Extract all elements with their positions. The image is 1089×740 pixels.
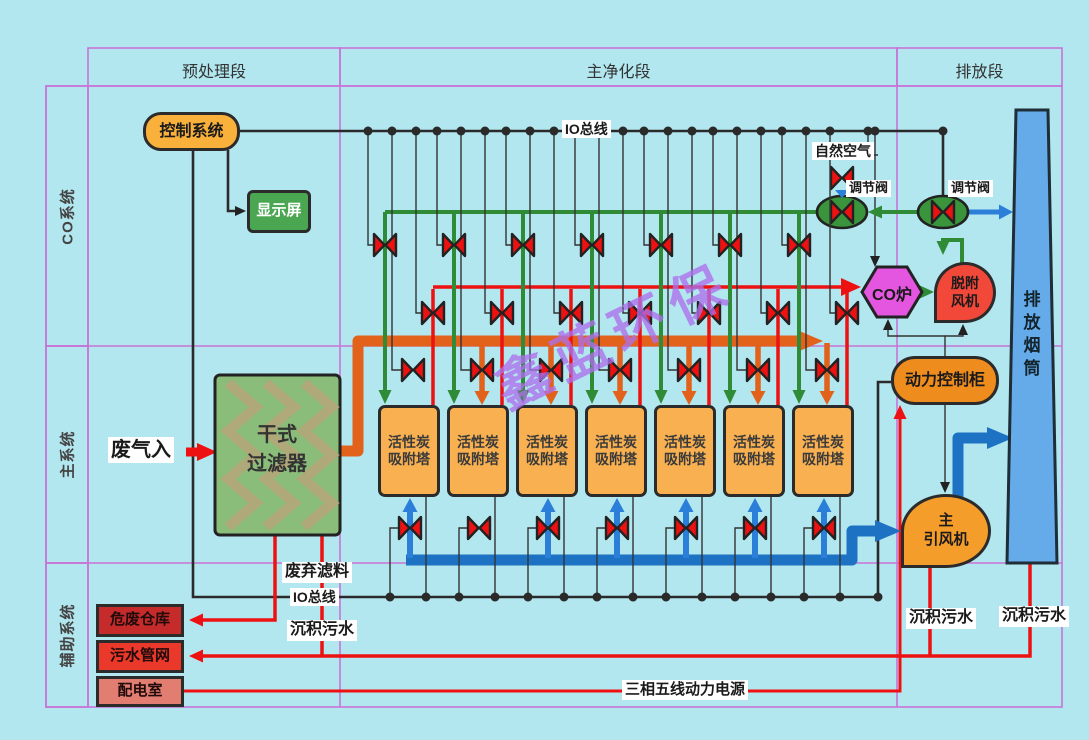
adsorption-tower-6[interactable]: 活性炭吸附塔: [723, 405, 785, 497]
pipe-valve[interactable]: [468, 517, 490, 539]
tower-plumbing: [364, 127, 859, 602]
sediment-sewage-mid-label: 沉积污水: [906, 608, 976, 629]
io-bus-top-label: IO总线: [562, 120, 611, 138]
tower-label-line1: 活性炭: [664, 434, 706, 452]
display-screen-box[interactable]: 显示屏: [247, 190, 311, 233]
adsorption-tower-5[interactable]: 活性炭吸附塔: [654, 405, 716, 497]
power-cabinet-box[interactable]: 动力控制柜: [891, 356, 999, 405]
main-fan-box[interactable]: 主引风机: [901, 494, 991, 568]
adsorption-tower-7[interactable]: 活性炭吸附塔: [792, 405, 854, 497]
adsorption-tower-3[interactable]: 活性炭吸附塔: [516, 405, 578, 497]
natural-air-label: 自然空气: [812, 142, 874, 160]
tower-label-line2: 吸附塔: [664, 451, 706, 469]
tower-label-line2: 吸附塔: [733, 451, 775, 469]
tower-label-line2: 吸附塔: [526, 451, 568, 469]
power-supply-label: 三相五线动力电源: [622, 680, 748, 700]
row-label-main-system: 主系统: [57, 405, 78, 505]
row-label-co-system: CO系统: [57, 167, 78, 267]
tower-label-line2: 吸附塔: [802, 451, 844, 469]
sewage-network-box[interactable]: 污水管网: [96, 640, 184, 673]
tower-label-line1: 活性炭: [733, 434, 775, 452]
tower-label-line1: 活性炭: [526, 434, 568, 452]
row-label-aux-system: 辅助系统: [57, 586, 78, 686]
adsorption-tower-4[interactable]: 活性炭吸附塔: [585, 405, 647, 497]
sediment-sewage-left-label: 沉积污水: [287, 620, 357, 641]
process-flow-diagram: 预处理段 主净化段 排放段 CO系统 主系统 辅助系统 控制系统 显示屏 干式过…: [0, 0, 1089, 740]
hazard-store-box[interactable]: 危废仓库: [96, 604, 184, 637]
tower-label-line1: 活性炭: [802, 434, 844, 452]
adsorption-tower-2[interactable]: 活性炭吸附塔: [447, 405, 509, 497]
header-emission: 排放段: [897, 58, 1062, 82]
sediment-sewage-right-label: 沉积污水: [999, 606, 1069, 627]
tower-label-line1: 活性炭: [388, 434, 430, 452]
tower-label-line2: 吸附塔: [457, 451, 499, 469]
header-main-purification: 主净化段: [340, 58, 897, 82]
waste-filter-label: 废弃滤料: [282, 562, 352, 583]
io-bus-bottom-label: IO总线: [290, 588, 339, 606]
waste-gas-in-label: 废气入: [108, 437, 174, 463]
regulating-valve-right[interactable]: [918, 196, 968, 228]
co-furnace-label[interactable]: CO炉: [860, 281, 924, 305]
stack-label: 排放烟筒: [1019, 288, 1045, 380]
pipe-valve[interactable]: [402, 359, 424, 381]
control-system-box[interactable]: 控制系统: [143, 112, 240, 151]
reg-valve-right-label: 调节阀: [948, 180, 993, 197]
dry-filter-label: 干式过滤器: [227, 418, 327, 476]
tower-label-line2: 吸附塔: [388, 451, 430, 469]
power-room-box[interactable]: 配电室: [96, 676, 184, 707]
tower-label-line1: 活性炭: [457, 434, 499, 452]
header-pretreatment: 预处理段: [88, 58, 340, 82]
tower-label-line2: 吸附塔: [595, 451, 637, 469]
desorption-fan-box[interactable]: 脱附风机: [934, 262, 996, 323]
tower-label-line1: 活性炭: [595, 434, 637, 452]
reg-valve-left-label: 调节阀: [846, 180, 891, 197]
regulating-valve-left[interactable]: [817, 196, 867, 228]
adsorption-tower-1[interactable]: 活性炭吸附塔: [378, 405, 440, 497]
